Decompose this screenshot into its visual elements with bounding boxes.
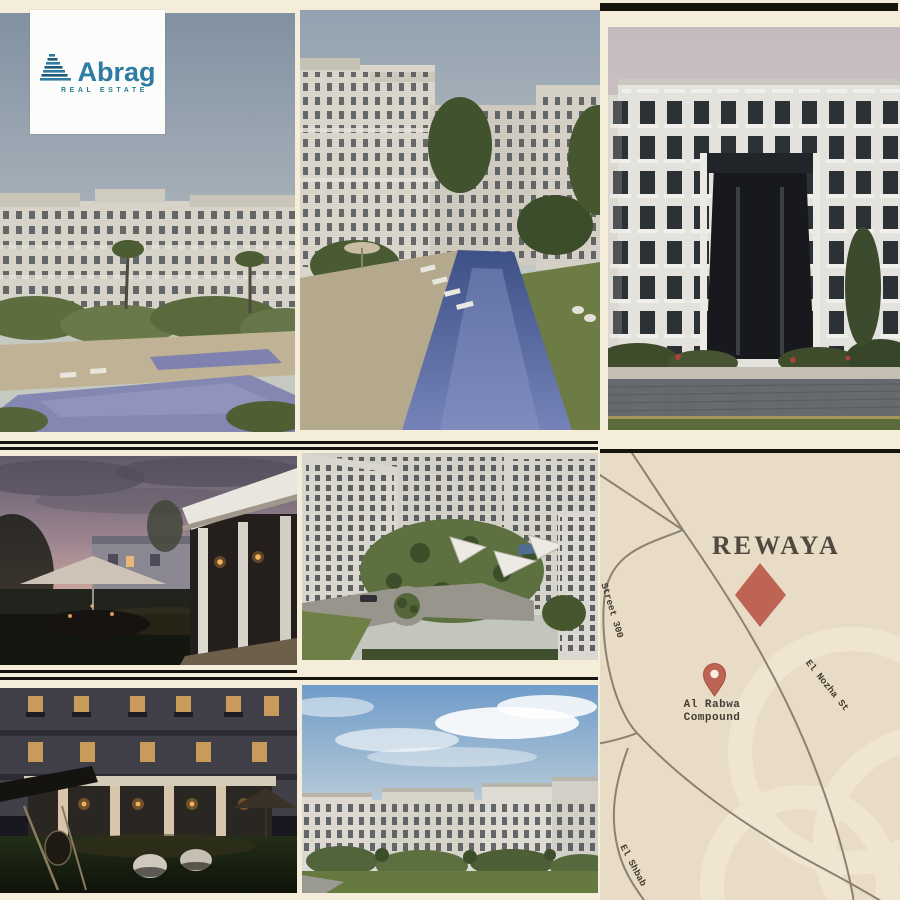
row-separator-line — [0, 441, 598, 444]
lagoon-pool-illustration — [300, 10, 600, 430]
row-separator-line — [0, 447, 598, 450]
aerial-park-illustration — [302, 453, 598, 660]
brand-logo-card: Abrag REAL ESTATE — [30, 10, 165, 134]
photo-lagoon-pool-day[interactable] — [300, 10, 600, 430]
photo-compound-lawn-day[interactable] — [302, 685, 598, 893]
compound-lawn-illustration — [302, 685, 598, 893]
photo-terrace-dusk[interactable] — [0, 456, 297, 665]
brand-tagline: REAL ESTATE — [61, 87, 148, 94]
row-separator-line — [0, 670, 297, 673]
photo-villa-night[interactable] — [0, 688, 297, 893]
terrace-dusk-illustration — [0, 456, 297, 665]
brand-logo-row: Abrag — [39, 50, 155, 84]
top-right-accent-bar — [600, 3, 898, 11]
map-marker-label: Al Rabwa Compound — [664, 699, 760, 724]
map-project-title: REWAYA — [712, 531, 840, 561]
buildings-logo-icon — [39, 50, 75, 84]
photo-aerial-park[interactable] — [302, 453, 598, 660]
photo-building-entrance-sunset[interactable] — [608, 27, 900, 430]
row-separator-line — [0, 677, 598, 680]
map-marker-label-line2: Compound — [664, 712, 760, 725]
brand-name: Abrag — [77, 60, 155, 84]
map-marker-label-line1: Al Rabwa — [664, 699, 760, 712]
real-estate-collage: REWAYA Al Rabwa Compound Street 300 El N… — [0, 0, 900, 900]
location-map[interactable]: REWAYA Al Rabwa Compound Street 300 El N… — [600, 453, 900, 900]
map-illustration — [600, 453, 900, 900]
villa-night-illustration — [0, 688, 297, 893]
building-entrance-illustration — [608, 27, 900, 430]
